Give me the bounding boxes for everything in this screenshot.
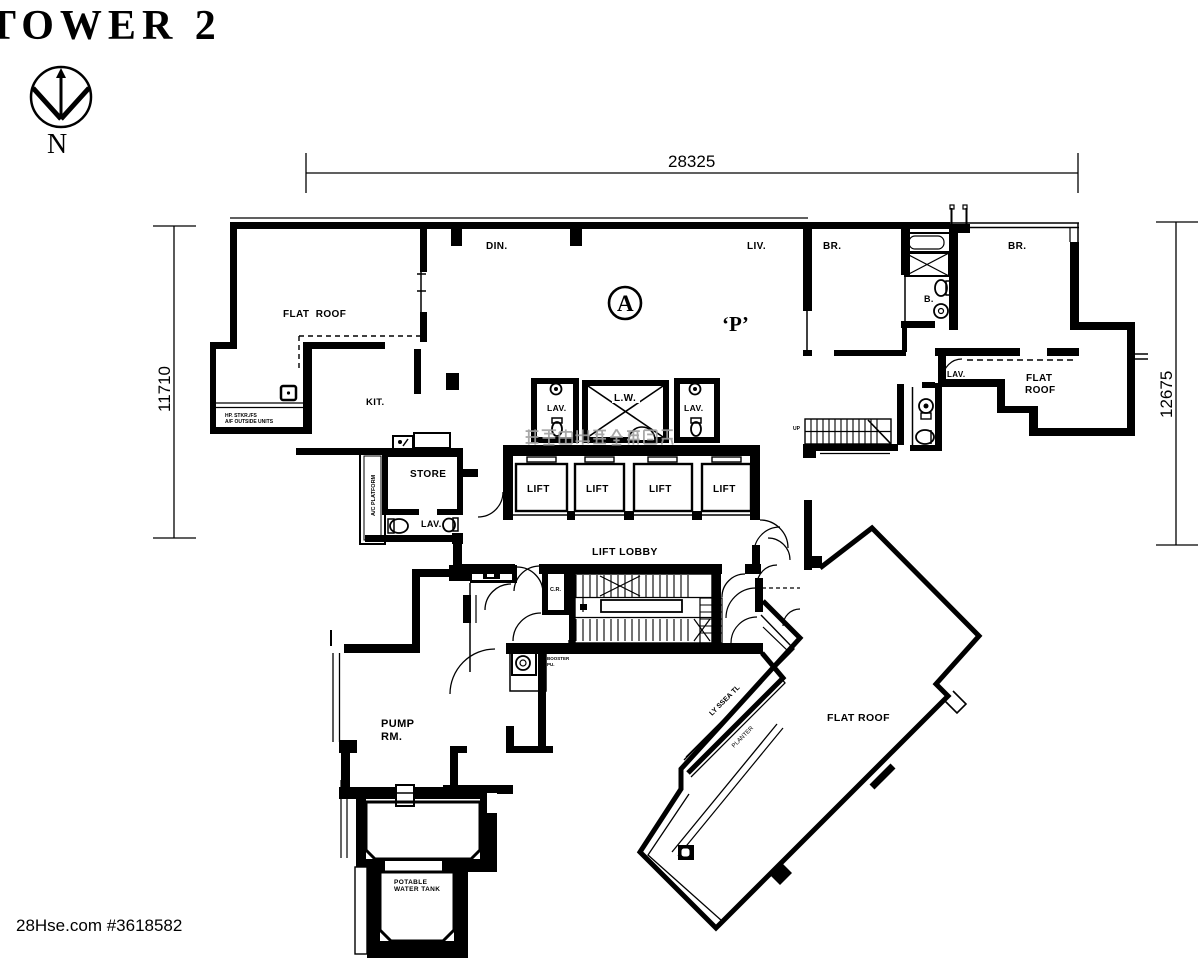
svg-text:BOOSTER: BOOSTER <box>547 656 570 661</box>
svg-text:B.: B. <box>924 294 934 304</box>
svg-text:FLAT: FLAT <box>1026 373 1052 384</box>
svg-text:LAV.: LAV. <box>947 370 966 379</box>
svg-text:N: N <box>47 129 67 160</box>
svg-text:LIFT: LIFT <box>713 484 736 495</box>
svg-text:28Hse.com #3618582: 28Hse.com #3618582 <box>16 916 182 935</box>
svg-text:UP: UP <box>793 426 801 432</box>
svg-text:DIN.: DIN. <box>486 241 508 252</box>
svg-text:ROOF: ROOF <box>1025 385 1056 396</box>
svg-text:LY SSEA TL: LY SSEA TL <box>708 684 742 718</box>
svg-text:LIFT: LIFT <box>649 484 672 495</box>
svg-text:KIT.: KIT. <box>366 397 385 408</box>
svg-text:C.R.: C.R. <box>550 587 561 593</box>
svg-text:PUMP: PUMP <box>381 718 414 730</box>
svg-text:A/F OUTSIDE UNITS: A/F OUTSIDE UNITS <box>225 419 274 425</box>
svg-text:LAV.: LAV. <box>547 403 567 413</box>
svg-text:28325: 28325 <box>668 152 715 171</box>
svg-text:FLAT ROOF: FLAT ROOF <box>283 309 346 320</box>
svg-text:LAV.: LAV. <box>421 519 442 529</box>
svg-text:LIV.: LIV. <box>747 241 766 252</box>
svg-text:LIFT LOBBY: LIFT LOBBY <box>592 546 658 558</box>
svg-text:‘P’: ‘P’ <box>722 312 749 336</box>
svg-text:POTABLE: POTABLE <box>394 879 428 886</box>
svg-text:L.W.: L.W. <box>614 393 636 404</box>
svg-text:RM.: RM. <box>381 731 402 743</box>
svg-text:BR.: BR. <box>823 241 841 252</box>
svg-text:TOWER 2: TOWER 2 <box>0 3 222 49</box>
svg-text:WATER TANK: WATER TANK <box>394 886 440 893</box>
svg-text:12675: 12675 <box>1157 371 1176 418</box>
svg-text:BR.: BR. <box>1008 241 1026 252</box>
svg-text:11710: 11710 <box>155 366 174 412</box>
svg-text:STORE: STORE <box>410 469 446 480</box>
svg-text:A: A <box>617 291 634 316</box>
svg-text:A/C PLATFORM: A/C PLATFORM <box>371 474 377 516</box>
svg-text:PU.: PU. <box>547 662 555 667</box>
svg-text:LAV.: LAV. <box>684 403 704 413</box>
svg-text:LIFT: LIFT <box>527 484 550 495</box>
svg-text:LIFT: LIFT <box>586 484 609 495</box>
svg-text:FLAT ROOF: FLAT ROOF <box>827 712 890 724</box>
